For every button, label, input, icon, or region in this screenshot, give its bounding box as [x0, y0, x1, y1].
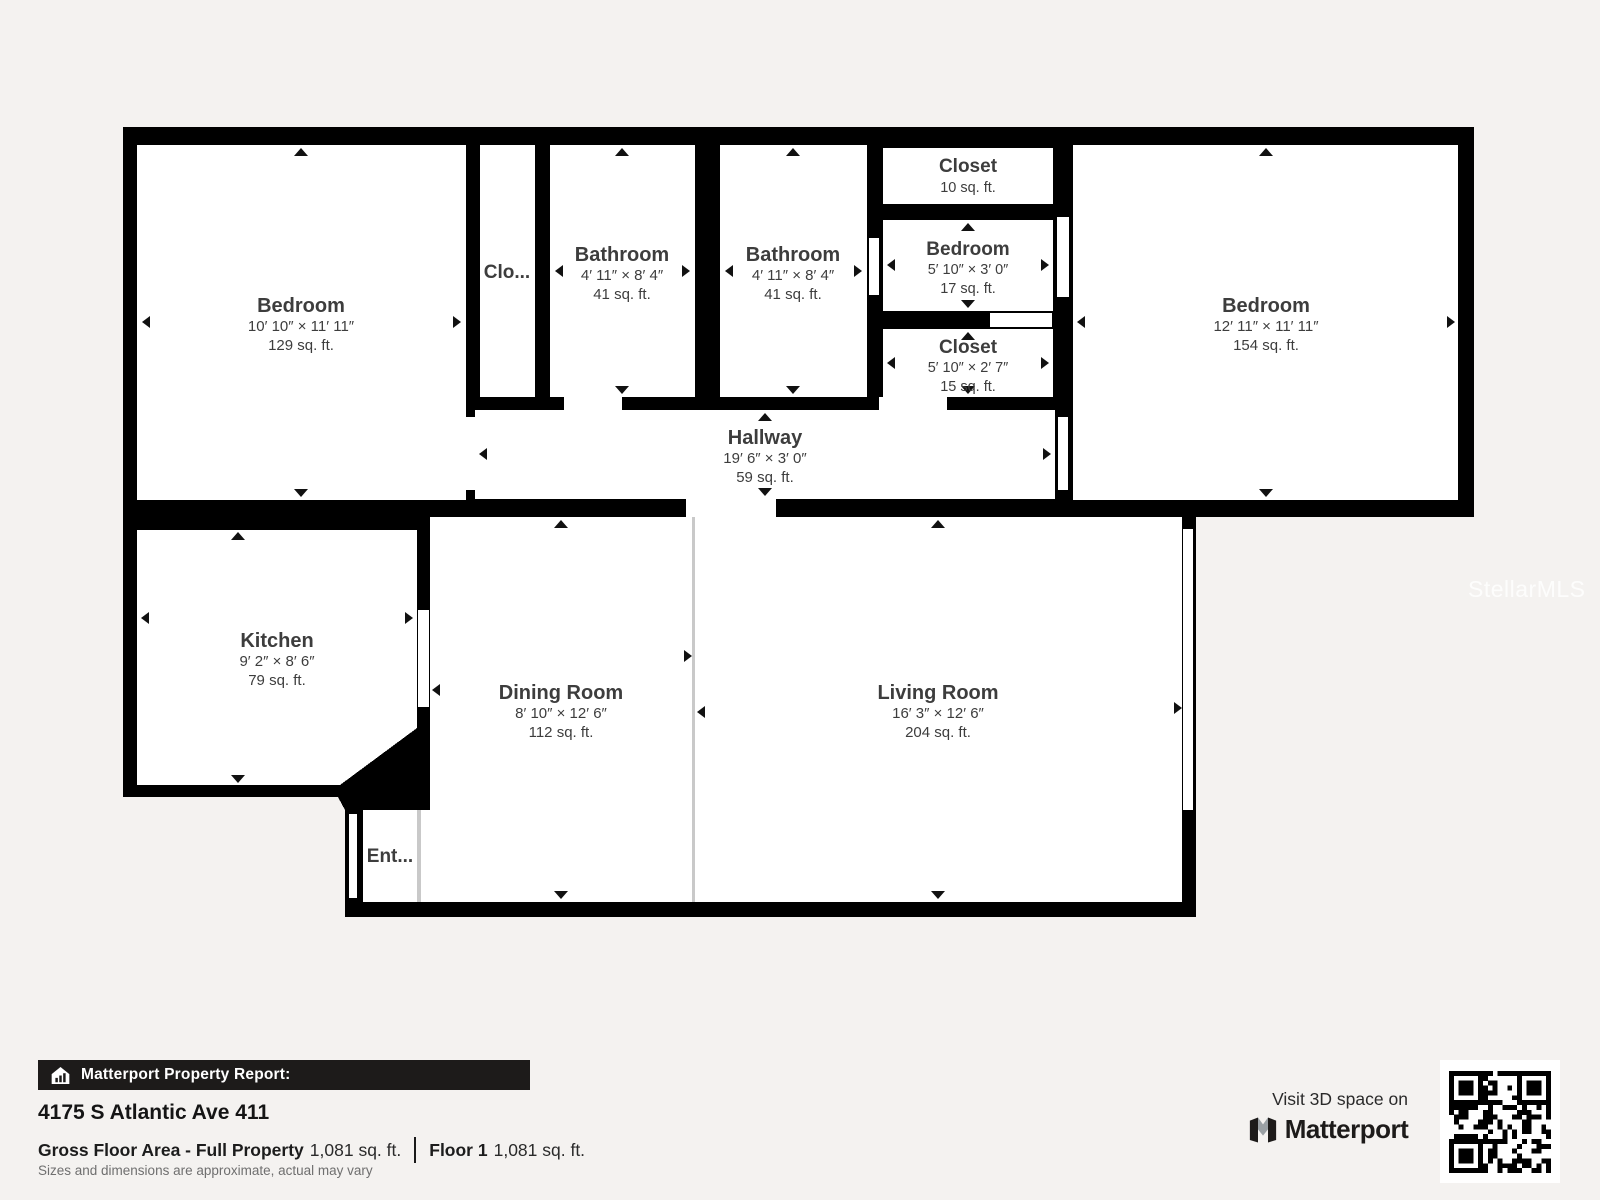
svg-text:59 sq. ft.: 59 sq. ft. [736, 469, 794, 486]
room-label-closet-hall: Clo... [484, 262, 530, 283]
svg-text:Dining Room: Dining Room [499, 682, 623, 704]
matterport-logo-icon [1248, 1115, 1278, 1145]
svg-text:41 sq. ft.: 41 sq. ft. [764, 286, 822, 303]
svg-text:9′ 2″ × 8′ 6″: 9′ 2″ × 8′ 6″ [239, 653, 315, 670]
visit-3d-cta[interactable]: Visit 3D space on Matterport [1228, 1089, 1428, 1145]
stellar-mls-watermark: StellarMLS [1468, 576, 1585, 603]
svg-text:5′ 10″ × 3′ 0″: 5′ 10″ × 3′ 0″ [928, 262, 1009, 278]
svg-text:5′ 10″ × 2′ 7″: 5′ 10″ × 2′ 7″ [928, 360, 1009, 376]
room-dining-ext [421, 810, 430, 902]
svg-text:4′ 11″ × 8′ 4″: 4′ 11″ × 8′ 4″ [581, 267, 664, 284]
report-header-bar: Matterport Property Report: [38, 1060, 530, 1090]
svg-text:Closet: Closet [939, 337, 998, 358]
report-bar-title: Matterport Property Report: [81, 1066, 291, 1084]
svg-text:10′ 10″ × 11′ 11″: 10′ 10″ × 11′ 11″ [248, 318, 355, 335]
floor-area-summary: Gross Floor Area - Full Property 1,081 s… [38, 1137, 585, 1163]
vertical-divider [414, 1137, 416, 1163]
svg-text:154 sq. ft.: 154 sq. ft. [1233, 337, 1299, 354]
svg-text:Bedroom: Bedroom [926, 239, 1009, 260]
room-label-kitchen: Kitchen 9′ 2″ × 8′ 6″ 79 sq. ft. [239, 630, 315, 689]
svg-text:10 sq. ft.: 10 sq. ft. [940, 180, 996, 196]
svg-text:8′ 10″ × 12′ 6″: 8′ 10″ × 12′ 6″ [515, 705, 607, 722]
svg-text:Living Room: Living Room [877, 682, 998, 704]
svg-text:112 sq. ft.: 112 sq. ft. [529, 724, 594, 741]
svg-text:12′ 11″ × 11′ 11″: 12′ 11″ × 11′ 11″ [1213, 318, 1319, 335]
svg-text:Bedroom: Bedroom [257, 295, 345, 317]
svg-text:Bedroom: Bedroom [1222, 295, 1310, 317]
room-label-closet-top: Closet 10 sq. ft. [939, 156, 998, 196]
svg-text:19′ 6″ × 3′ 0″: 19′ 6″ × 3′ 0″ [723, 450, 807, 467]
svg-text:Bathroom: Bathroom [575, 244, 669, 266]
svg-text:Closet: Closet [939, 156, 998, 177]
svg-text:17 sq. ft.: 17 sq. ft. [940, 281, 996, 297]
svg-text:41 sq. ft.: 41 sq. ft. [593, 286, 651, 303]
gross-area-label: Gross Floor Area - Full Property [38, 1140, 304, 1161]
qr-code[interactable] [1440, 1060, 1560, 1183]
floor-plan: Bedroom 10′ 10″ × 11′ 11″ 129 sq. ft. Cl… [0, 0, 1600, 1005]
gross-area-value: 1,081 sq. ft. [310, 1140, 401, 1161]
floor-label: Floor 1 [429, 1140, 487, 1161]
room-label-entry: Ent... [367, 846, 413, 867]
svg-text:Bathroom: Bathroom [746, 244, 840, 266]
svg-text:129 sq. ft.: 129 sq. ft. [268, 337, 334, 354]
svg-text:Clo...: Clo... [484, 262, 530, 283]
disclaimer-text: Sizes and dimensions are approximate, ac… [38, 1163, 373, 1178]
cta-prompt: Visit 3D space on [1272, 1089, 1408, 1110]
property-report-page: Bedroom 10′ 10″ × 11′ 11″ 129 sq. ft. Cl… [0, 0, 1600, 1200]
home-icon [51, 1066, 70, 1085]
svg-text:204 sq. ft.: 204 sq. ft. [905, 724, 971, 741]
svg-text:15 sq. ft.: 15 sq. ft. [940, 379, 996, 395]
svg-text:79 sq. ft.: 79 sq. ft. [248, 672, 306, 689]
property-address: 4175 S Atlantic Ave 411 [38, 1101, 269, 1125]
svg-text:Hallway: Hallway [728, 427, 803, 449]
svg-text:16′ 3″ × 12′ 6″: 16′ 3″ × 12′ 6″ [892, 705, 984, 722]
svg-text:Kitchen: Kitchen [240, 630, 313, 652]
matterport-wordmark: Matterport [1285, 1114, 1409, 1145]
floor-value: 1,081 sq. ft. [494, 1140, 585, 1161]
svg-text:4′ 11″ × 8′ 4″: 4′ 11″ × 8′ 4″ [752, 267, 835, 284]
svg-text:Ent...: Ent... [367, 846, 413, 867]
